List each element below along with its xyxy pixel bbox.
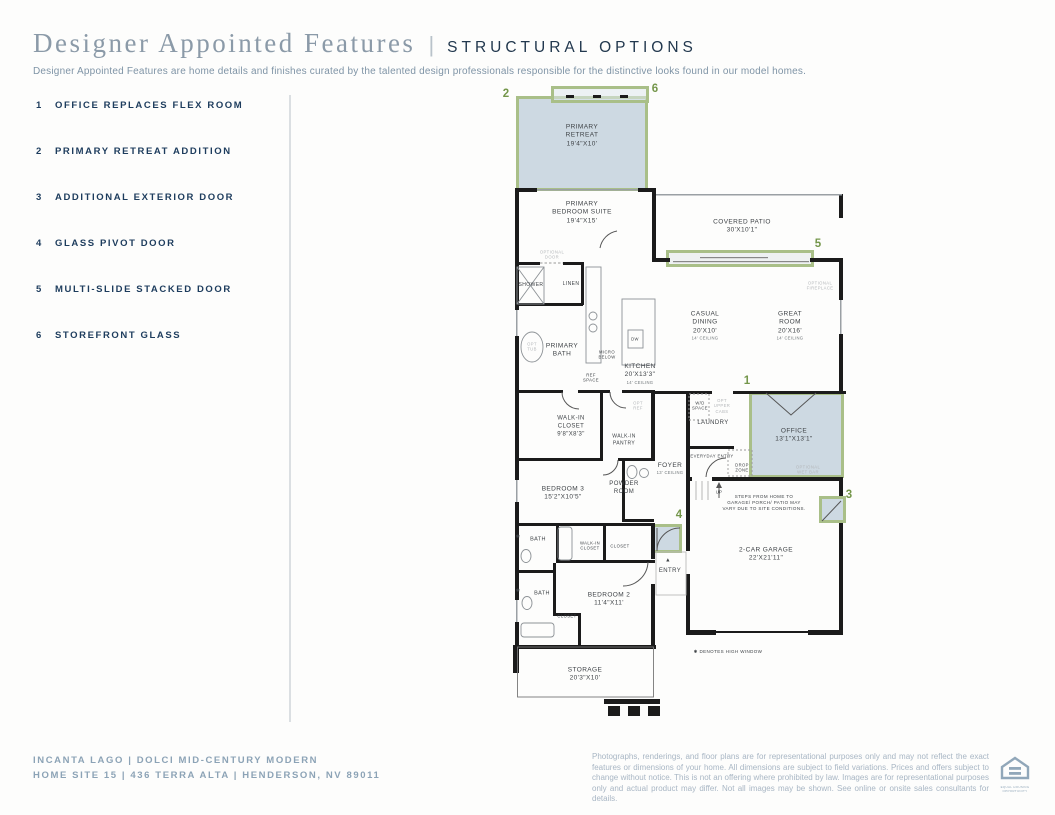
room-label-casual-dining: CASUALDINING20'X10'14' CEILING [691, 311, 719, 342]
option-label: STOREFRONT GLASS [55, 330, 181, 341]
option-number: 2 [36, 146, 55, 157]
equal-housing-caption: EQUAL HOUSING OPPORTUNITY [999, 786, 1031, 793]
option-label: GLASS PIVOT DOOR [55, 238, 176, 249]
room-label-ref-space: REFSPACE [583, 373, 599, 384]
room-label-entry-arrow: ▲ [665, 557, 671, 564]
equal-housing-logo: EQUAL HOUSING OPPORTUNITY [999, 756, 1031, 793]
option-marker-3: 3 [846, 489, 852, 501]
room-label-bedroom-2: BEDROOM 211'4"X11' [588, 592, 631, 609]
room-label-laundry: LAUNDRY [697, 420, 728, 428]
highlight-additional-exterior-door [819, 496, 846, 523]
room-label-garage: 2-CAR GARAGE22'X21'11" [739, 547, 793, 564]
room-label-bedroom-3: BEDROOM 315'2"X10'5" [542, 486, 585, 503]
room-label-high-window-note: ✱ DENOTES HIGH WINDOW [694, 649, 763, 655]
room-label-steps-note: STEPS FROM HOME TOGARAGE/ PORCH/ PATIO M… [722, 494, 805, 512]
footer-disclaimer: Photographs, renderings, and floor plans… [592, 752, 989, 805]
room-label-optional-wet-bar: OPTIONALWET BAR [796, 465, 820, 476]
option-label: ADDITIONAL EXTERIOR DOOR [55, 192, 234, 203]
page-subtitle: STRUCTURAL OPTIONS [447, 39, 697, 57]
option-number: 3 [36, 192, 55, 203]
room-label-shower: SHOWER [519, 282, 544, 289]
floorplan: PRIMARYRETREAT19'4"X10'PRIMARYBEDROOM SU… [0, 0, 1055, 815]
option-number: 5 [36, 284, 55, 295]
room-label-dw: DW [631, 336, 639, 341]
room-label-primary-bath: PRIMARYBATH [546, 343, 578, 360]
floorplan-walls [0, 0, 1055, 815]
option-marker-2: 2 [503, 88, 509, 100]
room-label-optional-door: OPTIONALDOOR [540, 250, 564, 261]
highlight-multi-slide-stacked-door [666, 250, 814, 267]
option-marker-5: 5 [815, 238, 821, 250]
option-label: OFFICE REPLACES FLEX ROOM [55, 100, 243, 111]
room-label-office: OFFICE13'1"X13'1" [775, 428, 813, 445]
option-item-5: 5MULTI-SLIDE STACKED DOOR [36, 284, 232, 295]
option-item-2: 2PRIMARY RETREAT ADDITION [36, 146, 232, 157]
title-row: Designer Appointed Features | STRUCTURAL… [33, 28, 806, 59]
room-label-bath-1: BATH [530, 536, 546, 543]
room-label-high-window-marker-2: ✱ [516, 588, 521, 595]
room-label-drop-zone: DROPZONE [735, 463, 749, 474]
option-label: MULTI-SLIDE STACKED DOOR [55, 284, 232, 295]
footer-community-line1: INCANTA LAGO | DOLCI MID-CENTURY MODERN [33, 753, 380, 768]
room-label-foyer: FOYER13' CEILING [657, 462, 684, 476]
page-title: Designer Appointed Features [33, 28, 415, 59]
header: Designer Appointed Features | STRUCTURAL… [33, 28, 806, 77]
room-label-opt-upper-cabs: OPTUPPERCABS [714, 398, 730, 414]
option-marker-6: 6 [652, 83, 658, 95]
highlight-primary-retreat-addition [516, 96, 648, 191]
room-label-linen: LINEN [563, 281, 580, 288]
sidebar-divider [289, 95, 291, 722]
room-label-primary-retreat: PRIMARYRETREAT19'4"X10' [566, 123, 599, 148]
highlight-glass-pivot-door [652, 524, 682, 553]
option-item-3: 3ADDITIONAL EXTERIOR DOOR [36, 192, 234, 203]
option-item-1: 1OFFICE REPLACES FLEX ROOM [36, 100, 243, 111]
option-item-6: 6STOREFRONT GLASS [36, 330, 181, 341]
highlight-storefront-glass [551, 86, 649, 103]
option-number: 1 [36, 100, 55, 111]
footer-community: INCANTA LAGO | DOLCI MID-CENTURY MODERN … [33, 753, 380, 783]
room-label-storage: STORAGE20'3"X10' [568, 667, 602, 684]
room-label-wd-space: W/DSPACE [692, 401, 708, 412]
option-marker-1: 1 [744, 375, 750, 387]
footer-community-line2: HOME SITE 15 | 436 TERRA ALTA | HENDERSO… [33, 768, 380, 783]
room-label-opt-tub: OPTTUB [527, 342, 537, 353]
room-label-closet-2: CLOSET [557, 613, 576, 618]
equal-housing-house-icon [1000, 756, 1030, 780]
room-label-bath-2: BATH [534, 590, 550, 597]
room-label-primary-bedroom-suite: PRIMARYBEDROOM SUITE19'4"X15' [552, 200, 612, 225]
room-label-powder-room: POWDERROOM [609, 481, 638, 497]
room-label-walk-in-pantry: WALK-INPANTRY [612, 434, 635, 447]
room-label-opt-ref: OPTREF [633, 401, 643, 412]
option-marker-4: 4 [676, 509, 682, 521]
option-item-4: 4GLASS PIVOT DOOR [36, 238, 176, 249]
room-label-high-window-marker-1: ✱ [516, 534, 521, 541]
room-label-optional-fireplace: OPTIONALFIREPLACE [807, 281, 834, 292]
room-label-up: UP [716, 489, 723, 494]
option-number: 4 [36, 238, 55, 249]
page: Designer Appointed Features | STRUCTURAL… [0, 0, 1055, 815]
room-label-everyday-entry: EVERYDAY ENTRY [690, 453, 733, 458]
room-label-closet-1: CLOSET [610, 543, 629, 548]
option-number: 6 [36, 330, 55, 341]
room-label-kitchen: KITCHEN20'X13'3"14' CEILING [624, 363, 655, 385]
header-description: Designer Appointed Features are home det… [33, 66, 806, 77]
room-label-covered-patio: COVERED PATIO30'X10'1" [713, 219, 771, 236]
room-label-micro-below: MICROBELOW [598, 350, 615, 361]
room-label-great-room: GREATROOM20'X16'14' CEILING [777, 311, 804, 342]
room-label-entry: ENTRY [659, 568, 681, 576]
highlight-office-replaces-flex [749, 392, 844, 478]
title-divider: | [428, 32, 434, 58]
room-label-walk-in-closet: WALK-INCLOSET9'8"X8'3" [557, 415, 585, 438]
option-label: PRIMARY RETREAT ADDITION [55, 146, 232, 157]
room-label-walk-in-closet-2: WALK-INCLOSET [580, 541, 600, 552]
